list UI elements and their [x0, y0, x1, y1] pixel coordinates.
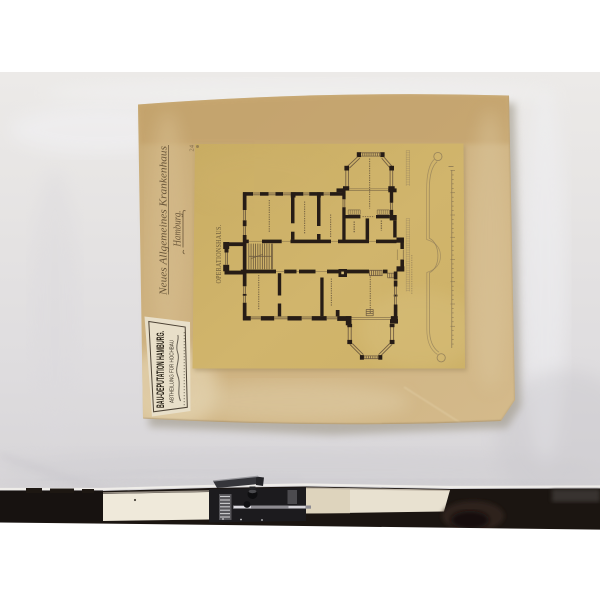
svg-text:24: 24: [189, 144, 196, 151]
svg-text:OPERATIONSHAUS.: OPERATIONSHAUS.: [214, 225, 223, 284]
svg-text:Hamburg.: Hamburg.: [173, 211, 184, 248]
svg-text:Neues Allgemeines Krankenhaus: Neues Allgemeines Krankenhaus: [159, 146, 170, 296]
svg-text:BAU-DEPUTATION HAMBURG.: BAU-DEPUTATION HAMBURG.: [155, 331, 167, 408]
svg-text:ABTHEILUNG FÜR HOCHBAU: ABTHEILUNG FÜR HOCHBAU: [169, 340, 176, 403]
